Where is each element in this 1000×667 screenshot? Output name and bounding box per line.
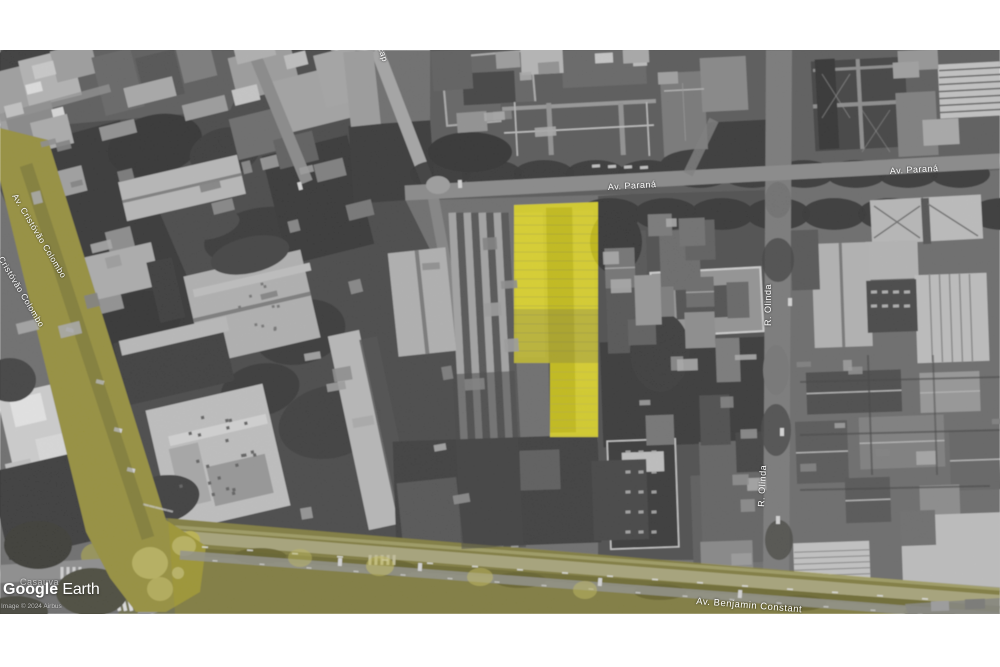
- svg-text:R. Olinda: R. Olinda: [763, 284, 773, 326]
